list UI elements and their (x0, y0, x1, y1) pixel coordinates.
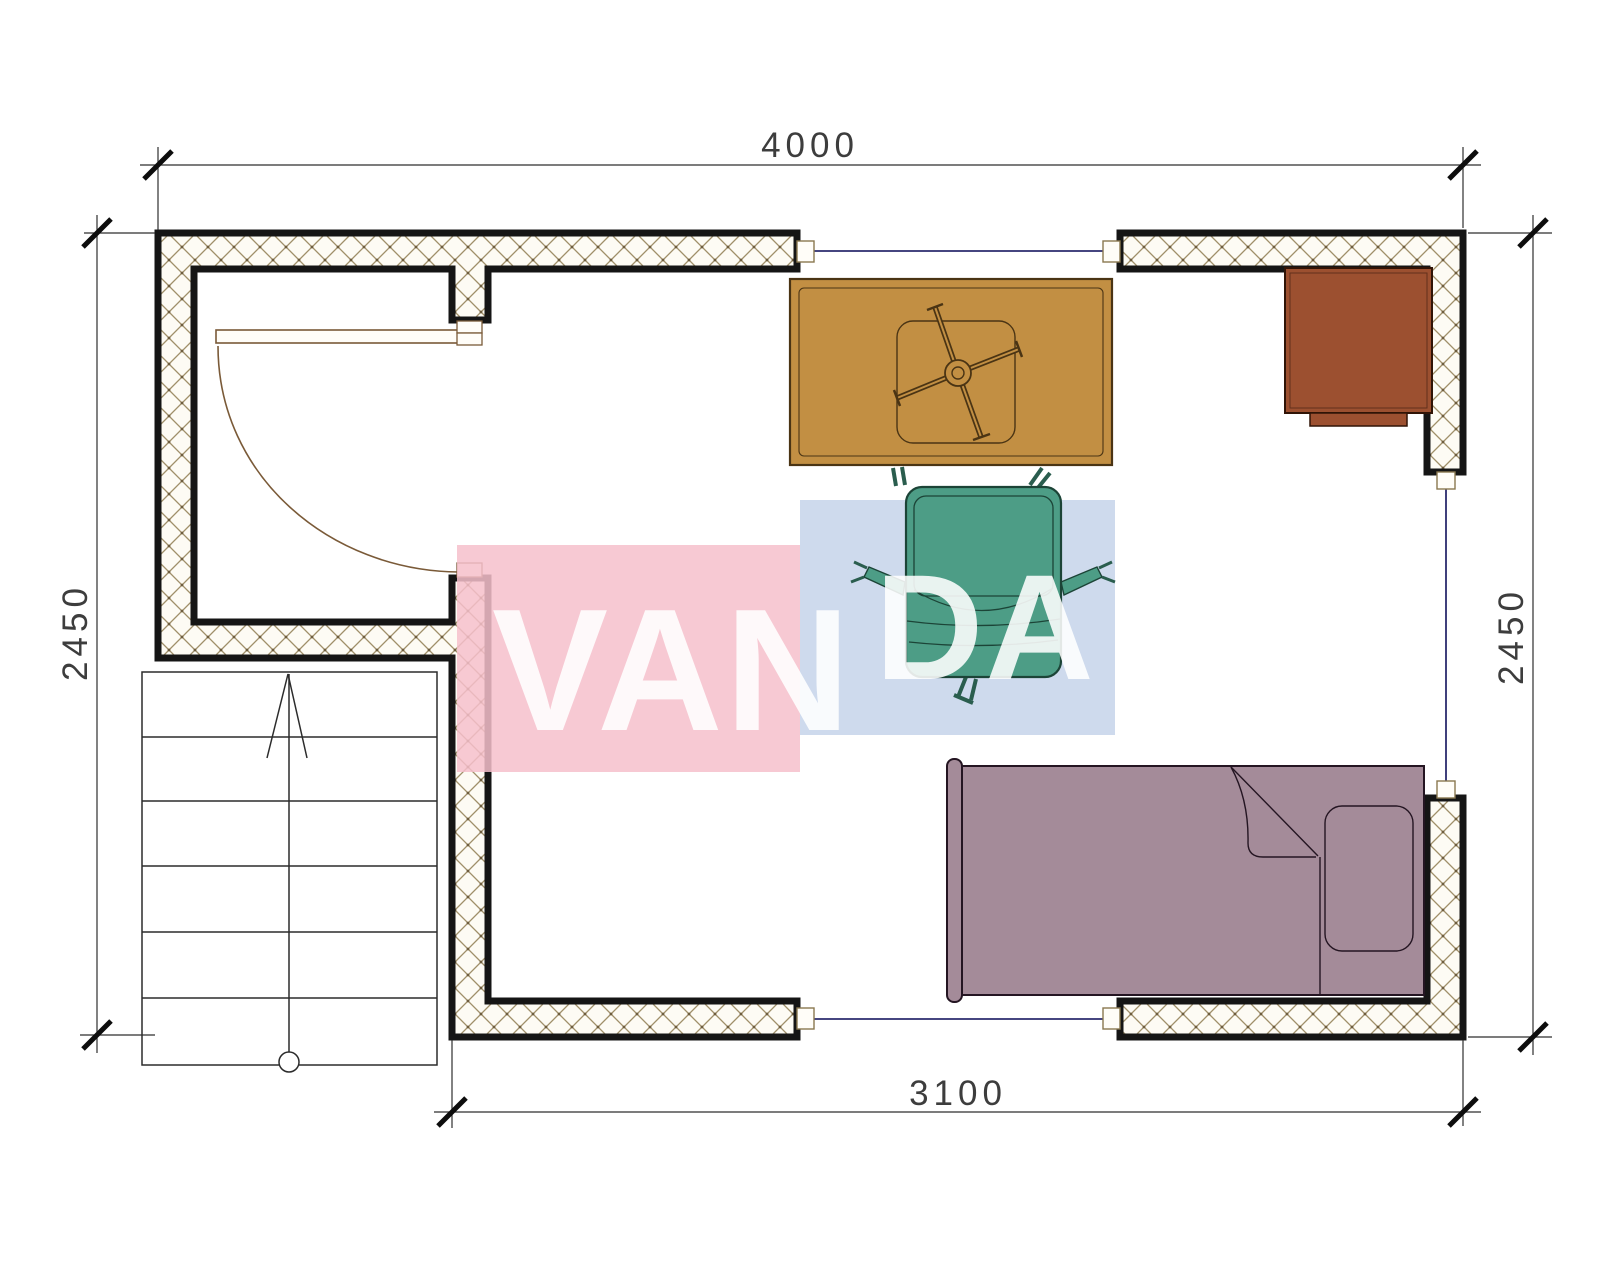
watermark-text-van: VAN (492, 583, 852, 757)
floor-plan-canvas: VAN DA 4000 2450 2450 3100 (0, 0, 1600, 1280)
watermark-text-da: DA (875, 552, 1096, 702)
